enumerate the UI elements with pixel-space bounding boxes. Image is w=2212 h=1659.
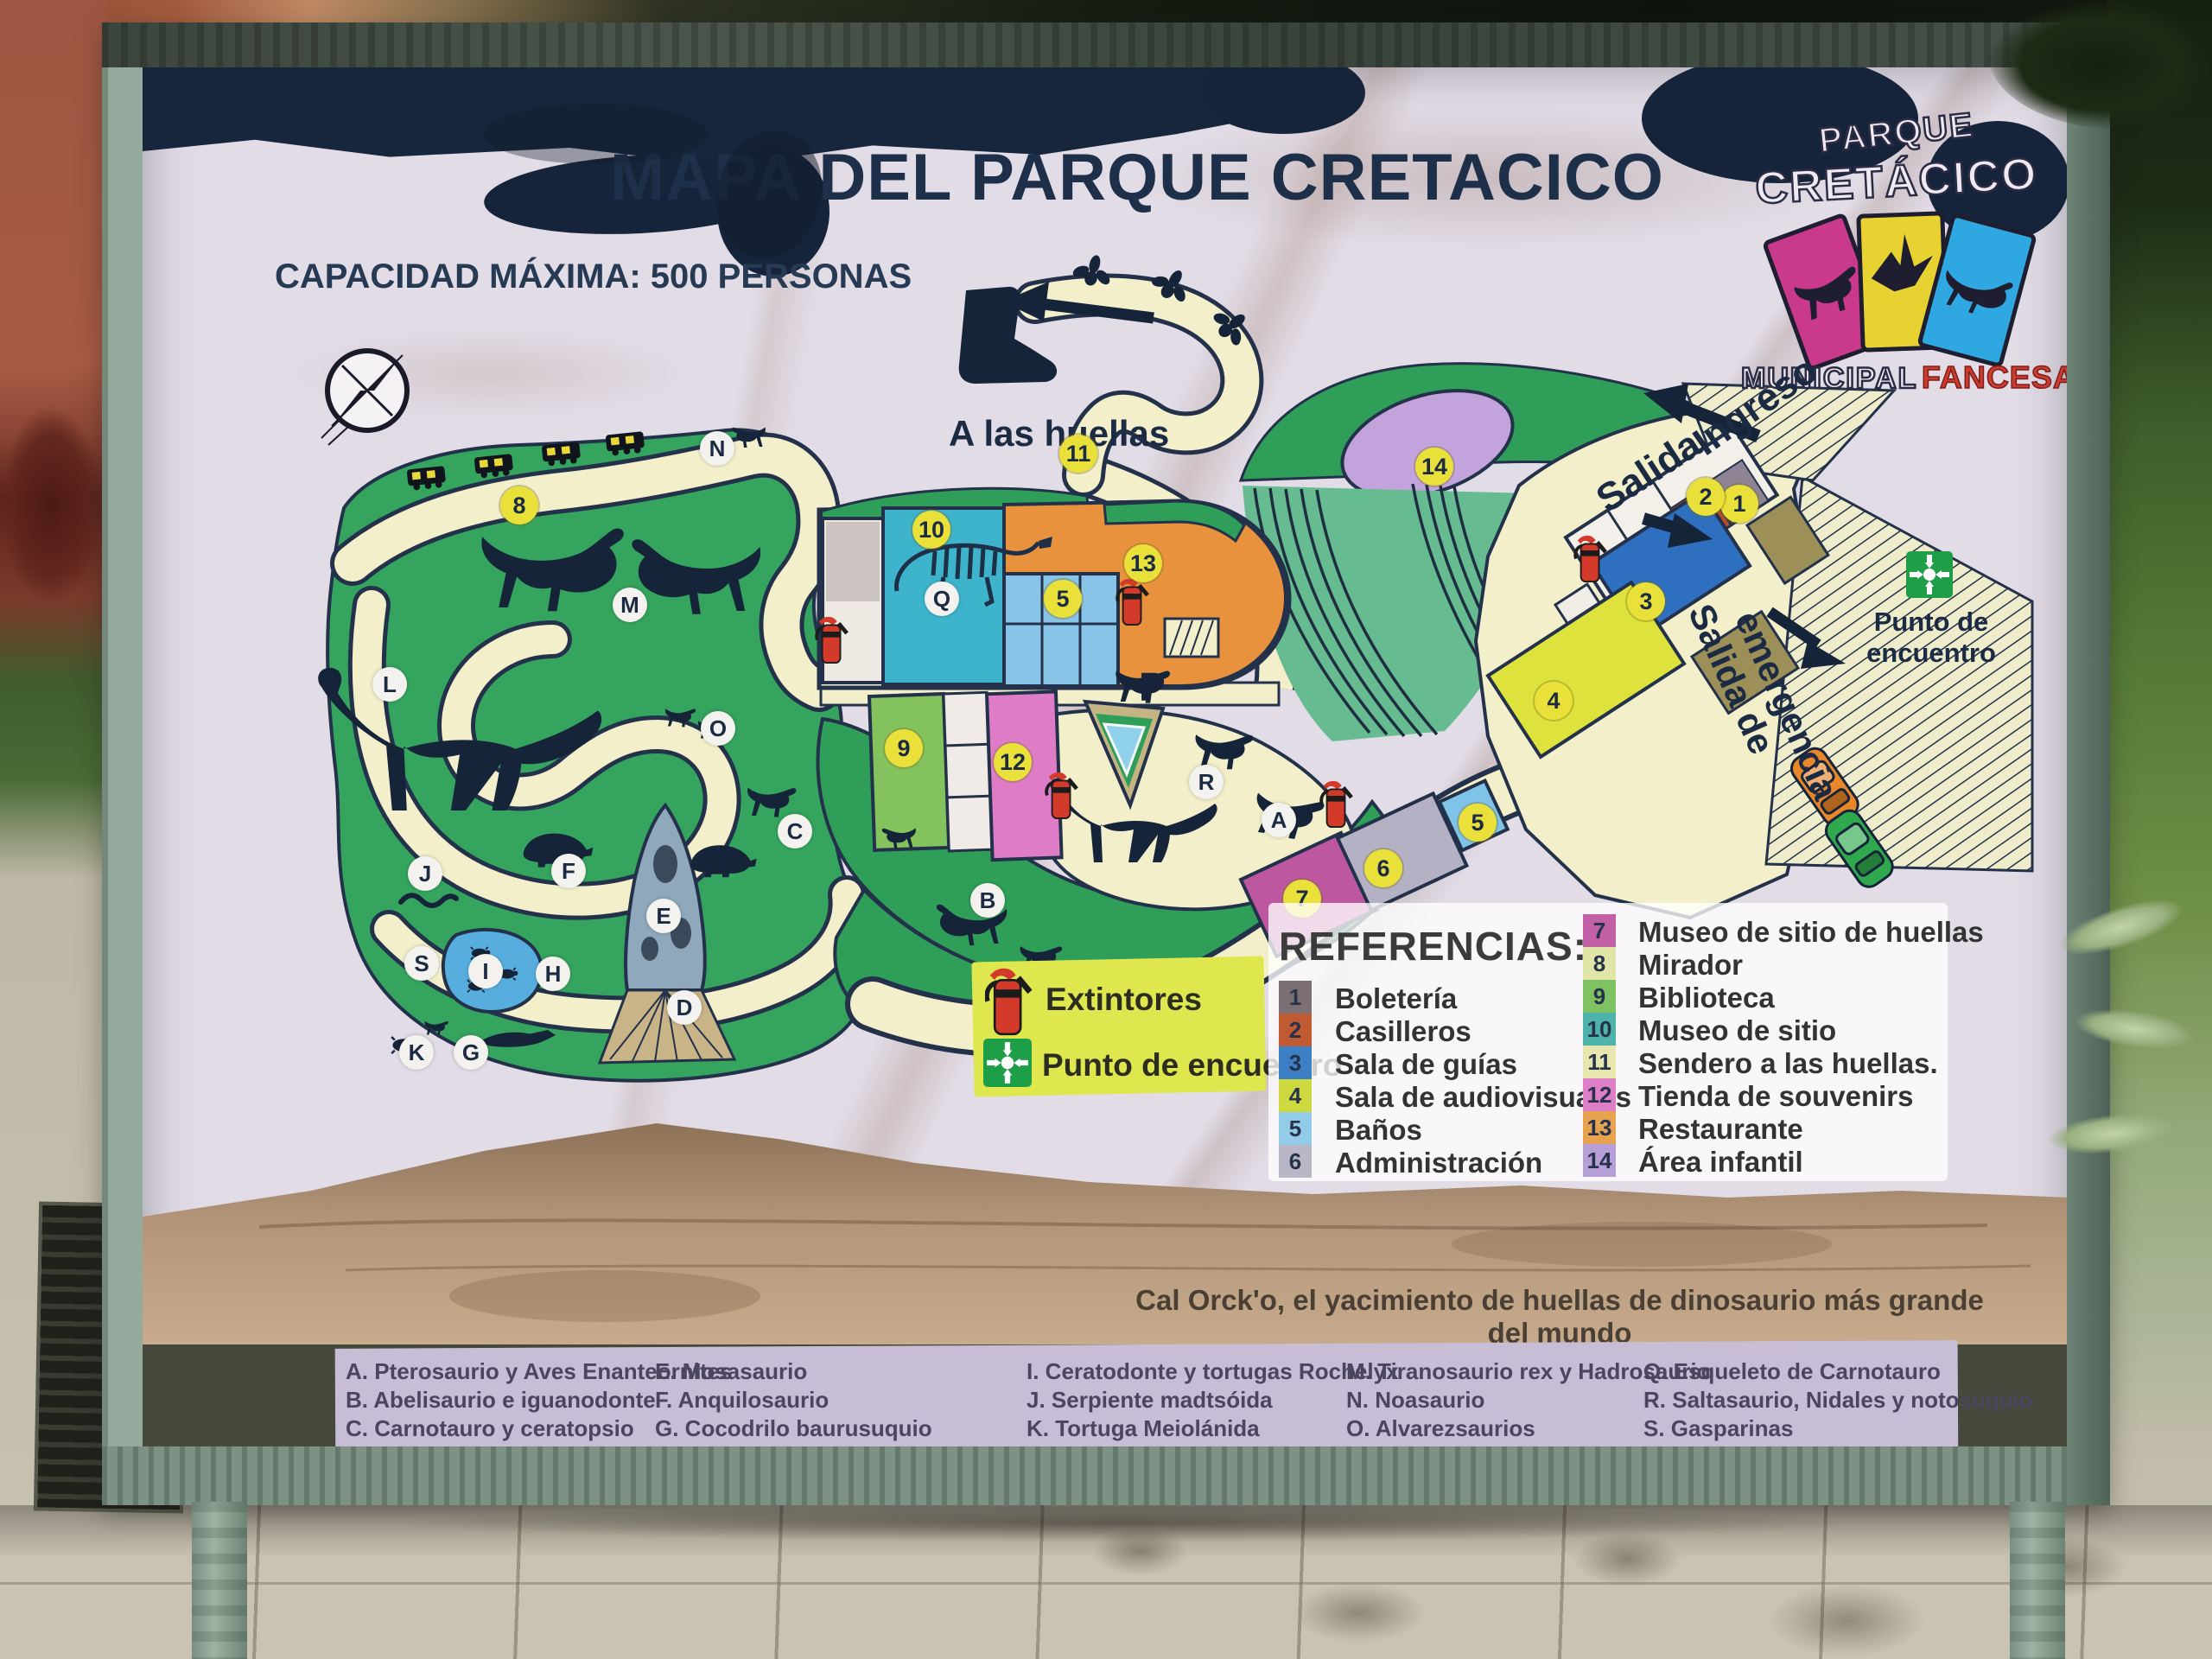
legend-label-14: Área infantil: [1638, 1146, 1803, 1179]
map-letter-F: F: [551, 854, 586, 888]
legend-label-13: Restaurante: [1638, 1113, 1803, 1146]
legend-swatch-3: 3: [1279, 1046, 1312, 1079]
references-title: REFERENCIAS:: [1279, 923, 1587, 969]
species-Q: Q. Esqueleto de Carnotauro: [1643, 1358, 1941, 1385]
species-I: I. Ceratodonte y tortugas Rochelyx: [1027, 1358, 1399, 1385]
legend-swatch-1: 1: [1279, 981, 1312, 1014]
species-G: G. Cocodrilo baurusuquio: [655, 1415, 932, 1442]
species-F: F. Anquilosaurio: [655, 1387, 829, 1414]
legend-label-9: Biblioteca: [1638, 982, 1775, 1014]
map-marker-10: 10: [912, 511, 950, 549]
map-marker-9: 9: [885, 729, 923, 767]
legend-swatch-9: 9: [1583, 980, 1616, 1013]
map-letter-L: L: [372, 667, 407, 702]
frame-right-rail: [2067, 22, 2110, 1505]
species-C: C. Carnotauro y ceratopsio: [346, 1415, 634, 1442]
map-marker-4: 4: [1535, 682, 1573, 720]
legend-swatch-4: 4: [1279, 1079, 1312, 1112]
legend-label-11: Sendero a las huellas.: [1638, 1047, 1938, 1080]
map-letter-O: O: [701, 711, 735, 746]
legend-label-3: Sala de guías: [1335, 1048, 1517, 1081]
legend-label-10: Museo de sitio: [1638, 1014, 1836, 1047]
map-letter-Q: Q: [925, 582, 959, 616]
map-letter-M: M: [613, 588, 647, 622]
legend-swatch-11: 11: [1583, 1046, 1616, 1078]
sign-post-right: [2010, 1502, 2065, 1659]
map-marker-12: 12: [994, 743, 1032, 781]
species-K: K. Tortuga Meiolánida: [1027, 1415, 1260, 1442]
ornithomimid-icon: [1794, 265, 1867, 323]
compass-rose: [321, 351, 407, 445]
map-letter-N: N: [700, 431, 734, 466]
map-letter-S: S: [404, 946, 439, 981]
legend-swatch-13: 13: [1583, 1111, 1616, 1144]
assembly-legend-icon: [983, 1039, 1032, 1087]
map-letter-I: I: [468, 954, 503, 988]
legend-swatch-14: 14: [1583, 1144, 1616, 1177]
map-letter-D: D: [667, 990, 702, 1025]
map-marker-8: 8: [500, 486, 538, 524]
map-letter-H: H: [536, 957, 570, 991]
legend-swatch-12: 12: [1583, 1078, 1616, 1111]
species-J: J. Serpiente madtsóida: [1027, 1387, 1273, 1414]
legend-swatch-8: 8: [1583, 947, 1616, 980]
theropod-icon: [1938, 266, 2013, 321]
legend-swatch-10: 10: [1583, 1013, 1616, 1046]
map-marker-6: 6: [1364, 849, 1402, 887]
map-marker-5b: 5: [1459, 804, 1497, 842]
legend-label-1: Boletería: [1335, 982, 1457, 1015]
legend-label-12: Tienda de souvenirs: [1638, 1080, 1914, 1113]
map-letter-E: E: [646, 899, 681, 933]
legend-label-7: Museo de sitio de huellas: [1638, 916, 1984, 949]
pterosaur-icon: [1870, 233, 1934, 292]
frame-bottom-rail: [102, 1446, 2110, 1505]
frame-top-rail: [102, 22, 2110, 67]
logo-fancesa: FANCESA: [1922, 359, 2076, 395]
species-N: N. Noasaurio: [1346, 1387, 1484, 1414]
legend-label-6: Administración: [1335, 1147, 1542, 1179]
species-B: B. Abelisaurio e iguanodonte: [346, 1387, 656, 1414]
species-O: O. Alvarezsaurios: [1346, 1415, 1535, 1442]
legend-swatch-6: 6: [1279, 1145, 1312, 1178]
capacity-note: CAPACIDAD MÁXIMA: 500 PERSONAS: [275, 257, 912, 296]
map-letter-K: K: [399, 1035, 434, 1070]
map-marker-3: 3: [1627, 582, 1665, 620]
park-logo: PARQUE CRETÁCICO MUNICIPAL FANCESA: [1741, 111, 2052, 396]
map-marker-5: 5: [1044, 580, 1082, 618]
map-marker-13: 13: [1124, 544, 1162, 582]
extintores-label: Extintores: [1046, 982, 1202, 1018]
species-R: R. Saltasaurio, Nidales y notosuquio: [1643, 1387, 2033, 1414]
extinguisher-legend-icon: [985, 966, 1037, 1039]
map-letter-R: R: [1189, 765, 1224, 799]
species-E: E. Mosasaurio: [655, 1358, 807, 1385]
legend-label-8: Mirador: [1638, 949, 1743, 982]
legend-label-2: Casilleros: [1335, 1015, 1471, 1048]
map-marker-1: 1: [1720, 485, 1758, 523]
legend-swatch-5: 5: [1279, 1112, 1312, 1145]
legend-label-5: Baños: [1335, 1114, 1422, 1147]
grime: [484, 104, 709, 164]
map-letter-C: C: [778, 814, 812, 849]
map-letter-B: B: [970, 883, 1005, 918]
legend-swatch-7: 7: [1583, 914, 1616, 947]
map-letter-J: J: [408, 856, 442, 891]
map-marker-14: 14: [1415, 448, 1453, 486]
calorcko-tagline: Cal Orck'o, el yacimiento de huellas de …: [1123, 1284, 1996, 1350]
map-marker-2: 2: [1687, 478, 1725, 516]
sign-post-left: [192, 1502, 247, 1659]
map-letter-P: P: [1139, 664, 1166, 710]
map-marker-11: 11: [1059, 435, 1097, 473]
label-a-las-huellas: A las huellas: [949, 413, 1169, 454]
map-letter-A: A: [1262, 803, 1296, 837]
assembly-point-icon: [1906, 551, 1953, 598]
map-letter-G: G: [454, 1035, 488, 1070]
legend-swatch-2: 2: [1279, 1014, 1312, 1046]
label-punto-encuentro: Punto de encuentro: [1858, 607, 2005, 669]
species-S: S. Gasparinas: [1643, 1415, 1793, 1442]
